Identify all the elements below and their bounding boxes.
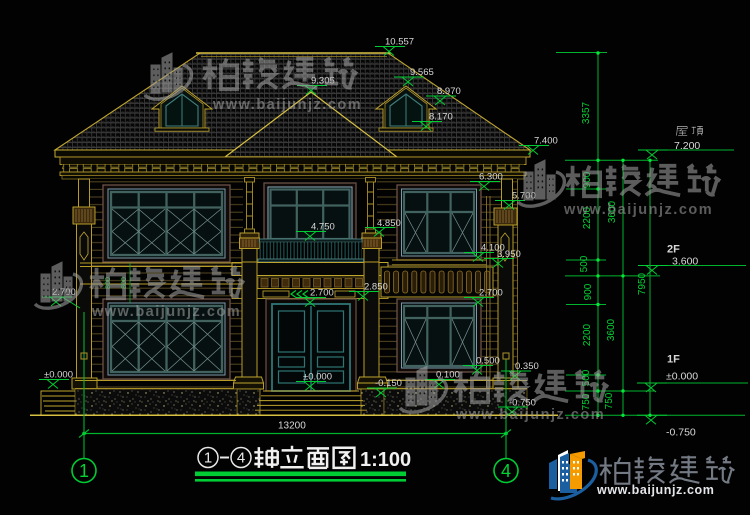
svg-text:-0.750: -0.750 — [666, 427, 696, 439]
svg-text:2F: 2F — [667, 244, 680, 256]
svg-text:0.500: 0.500 — [476, 356, 500, 367]
svg-text:www.baijunjz.com: www.baijunjz.com — [455, 407, 605, 423]
svg-text:750: 750 — [604, 392, 615, 409]
svg-text:www.baijunjz.com: www.baijunjz.com — [212, 97, 362, 113]
svg-text:3.600: 3.600 — [672, 256, 698, 268]
svg-text:±0.000: ±0.000 — [303, 372, 332, 383]
svg-text:4.750: 4.750 — [311, 222, 335, 233]
svg-text:9.565: 9.565 — [410, 67, 434, 78]
svg-text:www.baijunjz.com: www.baijunjz.com — [596, 483, 714, 497]
svg-text:±0.000: ±0.000 — [44, 370, 73, 381]
svg-text:4: 4 — [237, 450, 245, 467]
svg-text:0.350: 0.350 — [515, 361, 539, 372]
svg-text:13200: 13200 — [278, 421, 306, 432]
svg-text:www.baijunjz.com: www.baijunjz.com — [563, 202, 713, 218]
svg-text:www.baijunjz.com: www.baijunjz.com — [91, 304, 241, 320]
svg-text:7.400: 7.400 — [534, 136, 558, 147]
svg-text:8.170: 8.170 — [429, 112, 453, 123]
svg-text:2.700: 2.700 — [479, 288, 503, 299]
svg-text:1: 1 — [204, 450, 212, 467]
svg-text:4: 4 — [501, 461, 511, 481]
svg-text:7950: 7950 — [637, 272, 648, 295]
svg-text:2.850: 2.850 — [364, 282, 388, 293]
svg-text:10.557: 10.557 — [385, 37, 414, 48]
svg-text:3357: 3357 — [581, 101, 592, 124]
svg-text:2200: 2200 — [582, 323, 593, 346]
svg-text:3600: 3600 — [606, 318, 617, 341]
svg-text:7.200: 7.200 — [674, 140, 700, 152]
svg-text:1:100: 1:100 — [360, 449, 411, 471]
svg-text:1: 1 — [79, 461, 89, 481]
svg-text:8.970: 8.970 — [437, 86, 461, 97]
svg-text:±0.000: ±0.000 — [666, 371, 698, 383]
svg-text:1F: 1F — [667, 354, 680, 366]
svg-text:-0.150: -0.150 — [375, 378, 402, 389]
svg-text:500: 500 — [579, 255, 590, 272]
svg-text:900: 900 — [583, 283, 594, 300]
svg-text:2.700: 2.700 — [310, 288, 334, 299]
svg-text:6.300: 6.300 — [479, 172, 503, 183]
